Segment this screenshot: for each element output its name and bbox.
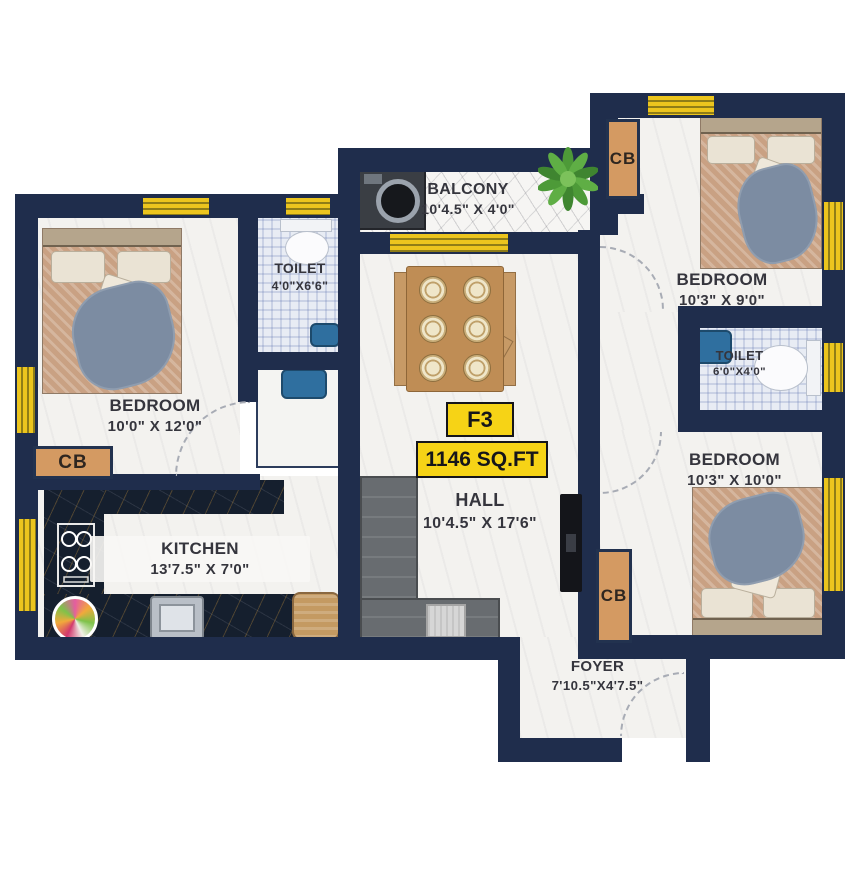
wall (338, 148, 360, 659)
room-dims: 4'0"X6'6" (250, 279, 350, 294)
food-plate-icon (52, 596, 98, 642)
unit-area-badge: 1146 SQ.FT (416, 441, 548, 478)
unit-code: F3 (467, 407, 493, 432)
cupboard-label: CB (610, 149, 637, 169)
bed-icon (700, 117, 822, 269)
window (648, 96, 714, 115)
corridor-floor (596, 306, 680, 432)
cupboard-left-bedroom: CB (33, 446, 113, 479)
sink-icon (150, 596, 204, 640)
bedroom-top-right-label: BEDROOM 10'3" X 9'0" (622, 270, 822, 310)
wall (686, 635, 710, 762)
room-dims: 6'0"X4'0" (692, 366, 787, 380)
window (19, 519, 36, 611)
cupboard-label: CB (601, 586, 628, 606)
hall-label: HALL 10'4.5" X 17'6" (380, 490, 580, 533)
window (286, 198, 330, 215)
toilet-icon (806, 340, 821, 396)
room-name: BEDROOM (622, 270, 822, 290)
wall (238, 194, 258, 402)
cupboard-label: CB (58, 452, 87, 474)
wall (678, 410, 845, 432)
bedroom-left-label: BEDROOM 10'0" X 12'0" (55, 396, 255, 436)
toilet-right-label: TOILET 6'0"X4'0" (692, 348, 787, 379)
room-name: KITCHEN (90, 539, 310, 559)
wall (498, 738, 622, 762)
wall (590, 93, 845, 118)
room-dims: 13'7.5" X 7'0" (90, 561, 310, 579)
bed-icon (692, 487, 826, 637)
foyer-label: FOYER 7'10.5"X4'7.5" (515, 658, 680, 694)
unit-area: 1146 SQ.FT (425, 448, 538, 471)
room-dims: 10'3" X 9'0" (622, 292, 822, 310)
basin-icon (310, 323, 340, 347)
room-name: HALL (380, 490, 580, 512)
bed-icon (42, 228, 182, 394)
floor-plan: CB CB CB F3 1146 SQ.FT BEDROOM 10'0" X 1… (0, 0, 866, 870)
ottoman (426, 604, 466, 638)
window (824, 202, 843, 270)
room-name: BEDROOM (632, 450, 837, 470)
cupboard-bottom-right-bedroom: CB (596, 549, 632, 643)
balcony-label: BALCONY 10'4.5" X 4'0" (368, 180, 568, 218)
bedroom-bottom-right-label: BEDROOM 10'3" X 10'0" (632, 450, 837, 490)
dining-table-icon (406, 266, 504, 392)
unit-code-badge: F3 (446, 402, 514, 437)
dining-bench (502, 272, 516, 386)
window (824, 343, 843, 392)
cupboard-top-right-bedroom: CB (606, 119, 640, 199)
room-dims: 10'4.5" X 17'6" (380, 514, 580, 533)
window (143, 198, 209, 215)
room-name: BEDROOM (55, 396, 255, 416)
toilet-left-label: TOILET 4'0"X6'6" (250, 260, 350, 294)
room-dims: 10'0" X 12'0" (55, 418, 255, 436)
window (824, 478, 843, 591)
room-dims: 7'10.5"X4'7.5" (515, 678, 680, 694)
wall (253, 352, 345, 370)
basket-icon (292, 592, 340, 640)
basin-icon (281, 369, 327, 399)
room-name: TOILET (250, 260, 350, 277)
room-dims: 10'3" X 10'0" (632, 472, 837, 490)
wall (15, 637, 520, 660)
room-name: FOYER (515, 658, 680, 676)
kitchen-label: KITCHEN 13'7.5" X 7'0" (90, 536, 310, 582)
window (390, 234, 508, 252)
window (17, 367, 35, 433)
room-name: BALCONY (368, 180, 568, 199)
room-dims: 10'4.5" X 4'0" (368, 201, 568, 218)
room-name: TOILET (692, 348, 787, 364)
